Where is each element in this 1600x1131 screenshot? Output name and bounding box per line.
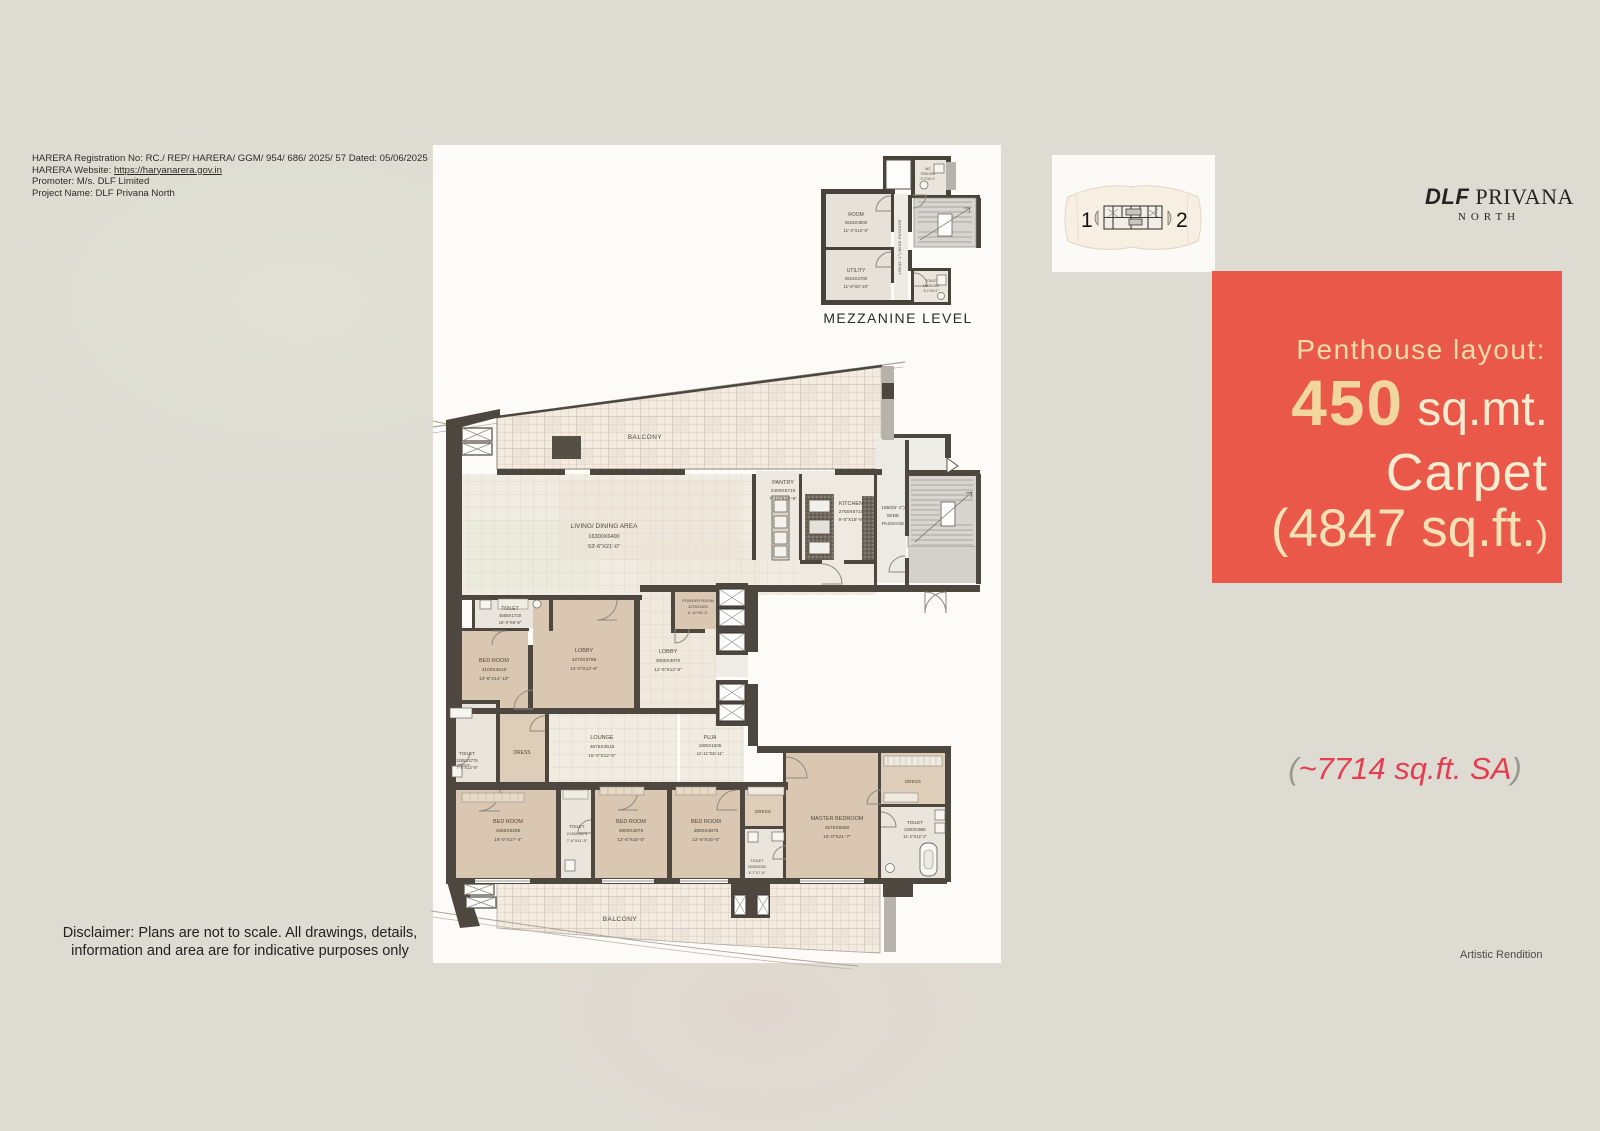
svg-text:9'-0"X18'-9": 9'-0"X18'-9"	[839, 517, 864, 523]
svg-text:11'-11"X6'-11": 11'-11"X6'-11"	[697, 751, 724, 756]
svg-text:TOILET: TOILET	[501, 606, 518, 612]
svg-text:6'-10"X5'-3": 6'-10"X5'-3"	[688, 611, 708, 615]
svg-text:BED ROOM: BED ROOM	[616, 819, 646, 825]
svg-text:LOUNGE: LOUNGE	[590, 735, 614, 741]
svg-text:1560X1525: 1560X1525	[923, 284, 940, 288]
svg-text:3615X3900: 3615X3900	[845, 220, 868, 225]
svg-text:15'-0"X21'-7": 15'-0"X21'-7"	[823, 834, 851, 840]
svg-text:BALCONY: BALCONY	[603, 916, 638, 923]
svg-text:11'-6"X8'-10": 11'-6"X8'-10"	[844, 284, 869, 289]
svg-text:TOILET: TOILET	[569, 824, 585, 829]
svg-text:WC: WC	[925, 167, 931, 171]
svg-text:KITCHEN: KITCHEN	[839, 501, 863, 507]
svg-text:3400X3685: 3400X3685	[904, 827, 926, 832]
svg-text:4575X6580: 4575X6580	[825, 825, 850, 831]
svg-text:1550(5'-1") WIDE PASSAGE: 1550(5'-1") WIDE PASSAGE	[898, 219, 902, 275]
svg-text:BED ROOM: BED ROOM	[493, 819, 523, 825]
svg-text:7'-0"X11'-5": 7'-0"X11'-5"	[567, 838, 588, 843]
svg-text:4100X4510: 4100X4510	[482, 667, 507, 673]
svg-text:MEZZANINE LEVEL: MEZZANINE LEVEL	[823, 310, 972, 326]
svg-text:13'-6"X14'-10": 13'-6"X14'-10"	[479, 676, 510, 682]
svg-text:PUJA: PUJA	[704, 735, 717, 741]
svg-text:3515X2700: 3515X2700	[845, 276, 868, 281]
svg-text:11'-2"X12'-1": 11'-2"X12'-1"	[903, 834, 927, 839]
svg-text:LOBBY: LOBBY	[575, 648, 594, 654]
svg-text:BED ROOM: BED ROOM	[479, 658, 509, 664]
svg-text:4675X3615: 4675X3615	[590, 744, 615, 750]
svg-text:BALCONY: BALCONY	[628, 434, 663, 441]
svg-text:DRESS: DRESS	[513, 750, 531, 756]
svg-text:BED ROOM: BED ROOM	[691, 819, 721, 825]
svg-text:12'-6"X16'-0": 12'-6"X16'-0"	[692, 837, 720, 843]
svg-text:UTILITY: UTILITY	[847, 268, 866, 274]
svg-text:DRESS: DRESS	[755, 809, 771, 814]
svg-text:16300X6400: 16300X6400	[588, 534, 619, 540]
svg-text:TOILET: TOILET	[750, 859, 764, 863]
svg-text:53'-6"X21'-0": 53'-6"X21'-0"	[588, 544, 620, 550]
svg-text:POWDER ROOM: POWDER ROOM	[682, 598, 714, 603]
svg-text:2400X5715: 2400X5715	[771, 488, 796, 494]
svg-text:PANTRY: PANTRY	[772, 480, 794, 486]
svg-text:975X1900: 975X1900	[921, 172, 936, 176]
svg-text:TOILET: TOILET	[459, 751, 475, 756]
svg-text:3800X3870: 3800X3870	[656, 658, 681, 664]
svg-text:2075X1600: 2075X1600	[688, 605, 707, 609]
svg-text:1: 1	[1081, 209, 1093, 232]
svg-text:1850(6'-1"): 1850(6'-1")	[881, 505, 905, 511]
svg-text:6'-7"X7'-9": 6'-7"X7'-9"	[749, 871, 766, 875]
svg-text:3800X4875: 3800X4875	[619, 828, 644, 834]
svg-text:7'-10"X18'-9": 7'-10"X18'-9"	[769, 496, 797, 502]
svg-text:15'-0"X12'-0": 15'-0"X12'-0"	[588, 753, 616, 759]
svg-text:2135X3475: 2135X3475	[567, 831, 588, 836]
svg-text:MASTER BEDROOM: MASTER BEDROOM	[811, 816, 864, 822]
svg-text:2: 2	[1176, 209, 1188, 232]
svg-text:TOILET: TOILET	[925, 279, 937, 283]
svg-text:1805X1505: 1805X1505	[699, 743, 722, 748]
svg-text:4565X1720: 4565X1720	[499, 613, 522, 618]
svg-text:WIDE: WIDE	[887, 513, 900, 519]
svg-text:LOBBY: LOBBY	[659, 649, 678, 655]
svg-text:14'-0"X12'-6": 14'-0"X12'-6"	[570, 666, 598, 672]
svg-text:ROOM: ROOM	[848, 212, 864, 218]
svg-text:TOILET: TOILET	[907, 820, 923, 825]
svg-text:5'-1"X5'-0": 5'-1"X5'-0"	[924, 289, 939, 293]
svg-text:3800X4875: 3800X4875	[694, 828, 719, 834]
svg-text:12'-6"X16'-0": 12'-6"X16'-0"	[617, 837, 645, 843]
svg-text:PASSAGE: PASSAGE	[882, 521, 905, 527]
svg-text:2000X2350: 2000X2350	[748, 865, 766, 869]
svg-text:DRESS: DRESS	[905, 779, 921, 784]
svg-text:15'-0"X5'-8": 15'-0"X5'-8"	[499, 620, 522, 625]
svg-text:4270X3795: 4270X3795	[572, 657, 597, 663]
svg-text:2265X3775: 2265X3775	[456, 758, 478, 763]
svg-text:LIVING/ DINING AREA: LIVING/ DINING AREA	[571, 523, 638, 530]
svg-text:7'-5"X12'-5": 7'-5"X12'-5"	[456, 765, 478, 770]
svg-text:2750X5710: 2750X5710	[839, 509, 864, 515]
svg-text:4565X5295: 4565X5295	[496, 828, 521, 834]
svg-text:12'-6"X12'-8": 12'-6"X12'-8"	[654, 667, 682, 673]
svg-text:11'-4"X12'-9": 11'-4"X12'-9"	[844, 228, 869, 233]
svg-text:3'-2"X6'-3": 3'-2"X6'-3"	[921, 177, 936, 181]
svg-text:15'-0"X17'-4": 15'-0"X17'-4"	[494, 837, 522, 843]
